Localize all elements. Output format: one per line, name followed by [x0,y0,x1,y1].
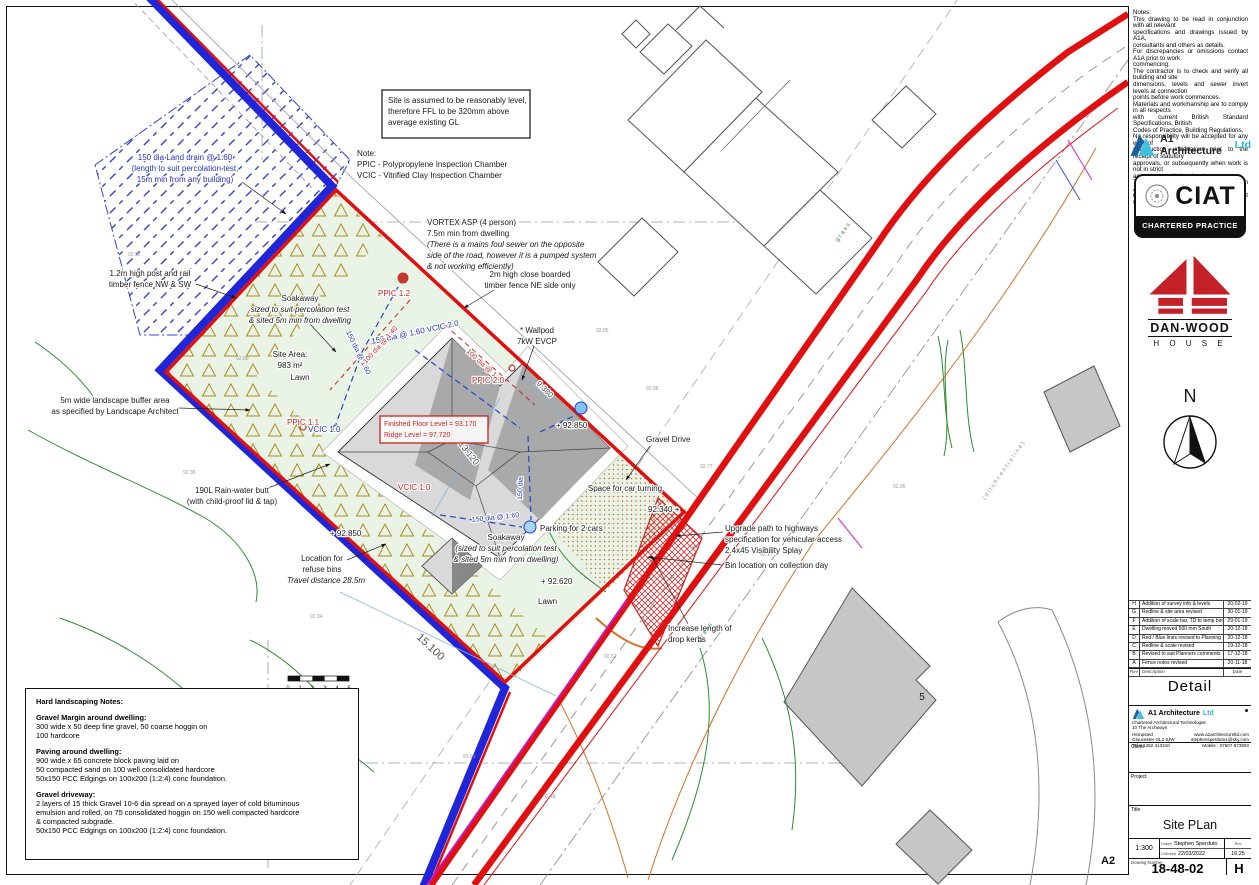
svg-text:92.86: 92.86 [236,356,249,362]
gravel-drive-label: Gravel Drive [646,435,691,444]
drawing-date: 22/03/2022 [1178,851,1205,857]
bullet-icon [1245,709,1248,712]
vortex-note: VORTEX ASP (4 person) [427,218,516,227]
chamber-note: Note: [357,149,376,158]
svg-text:91.95: 91.95 [463,754,476,760]
svg-text:92.34: 92.34 [310,614,323,620]
svg-text:therefore FFL to be 320mm abov: therefore FFL to be 320mm above [388,107,510,116]
detail-label: Detail [1129,678,1251,695]
spot-92340: 92.340 + [648,505,680,514]
wallpod-label: * Wallpod [520,326,554,335]
ppic-chamber-symbol [398,273,409,284]
a1-logo-text: A1 Architecture [1160,133,1231,157]
fence-ne-label: 2m high close boarded [490,270,571,279]
svg-text:92.52: 92.52 [604,654,617,660]
svg-text:average existing GL: average existing GL [388,118,460,127]
paper-size-label: A2 [1101,855,1115,867]
soakaway-symbol [524,521,536,533]
north-arrow: N [1129,374,1251,480]
svg-text:& sited 5m min from dwelling: & sited 5m min from dwelling [249,316,352,325]
svg-text:92.05: 92.05 [893,484,906,490]
client-field: Client [1129,742,1251,772]
svg-text:15m min from any building): 15m min from any building) [137,175,234,184]
buffer-label: 5m wide landscape buffer area [60,396,170,405]
detail-section: Detail [1129,668,1251,706]
drawing-number-label: Drawing Number [1131,860,1162,865]
firm-info: A1 ArchitectureLtd Chartered Architectur… [1129,705,1251,742]
svg-text:7.5m min from dwelling: 7.5m min from dwelling [427,229,509,238]
space-car-label: Space for car turning [588,484,662,493]
svg-text:92.88: 92.88 [646,386,659,392]
title-label: Title [1131,807,1140,813]
danwood-house-text: H O U S E [1129,339,1251,348]
svg-text:timber fence NW & SW: timber fence NW & SW [109,280,192,289]
hard-notes-heading: Hard landscaping Notes: [36,697,348,706]
svg-text:Ridge Level = 97.720: Ridge Level = 97.720 [384,432,450,439]
current-revision: H [1226,859,1251,875]
refuse-label: Location for [301,554,343,563]
svg-text:92.48: 92.48 [543,794,556,800]
project-field: Project [1129,772,1251,805]
danwood-text: DAN-WOOD [1148,319,1232,337]
svg-text:refuse bins: refuse bins [302,565,341,574]
dim-15100: 15.100 [414,631,447,663]
a1-logo-icon [1129,132,1156,159]
spot-92620: + 92.620 [541,577,573,586]
north-label: N [1184,386,1197,406]
spot-92850a: + 92.850 [556,421,588,430]
drawing-title: Site PLan [1131,818,1249,832]
neighbour-buildings-outline [598,6,936,296]
svg-text:PPIC - Polypropylene Inspectio: PPIC - Polypropylene Inspection Chamber [357,160,508,169]
revision-table: HAddition of survey info & levels20-02-1… [1129,600,1251,677]
title-field: Title Site PLan [1129,805,1251,838]
drawn-by: Stephen Sperduto [1174,841,1217,847]
ciat-emblem-icon [1144,183,1170,209]
gravel-margin-heading: Gravel Margin around dwelling: [36,713,348,722]
svg-text:timber fence NE side only: timber fence NE side only [484,281,575,290]
paving-body: 900 wide x 65 concrete block paving laid… [36,756,348,783]
scale-value: 1:300 [1129,839,1160,858]
bin-location-label: Bin location on collection day [725,561,828,570]
svg-text:92.92: 92.92 [128,252,141,258]
soakaway-nw-label: Soakaway [282,294,319,303]
svg-text:92.36: 92.36 [183,470,196,476]
culdesac-road-edges [998,608,1095,885]
danwood-house-icon [1146,252,1234,314]
svg-text:983 m²: 983 m² [278,361,303,370]
parking-label: Parking for 2 cars [540,524,603,533]
client-label: Client [1131,744,1144,750]
title-block: Notes: This drawing to be read in conjun… [1128,6,1251,875]
svg-text:(There is a mains foul sewer o: (There is a mains foul sewer on the oppo… [427,240,585,249]
upgrade-label: Upgrade path to highways [725,524,818,533]
hard-landscaping-notes: Hard landscaping Notes: Gravel Margin ar… [25,688,359,860]
svg-text:92.17: 92.17 [760,552,773,558]
svg-text:VCIC - Vitrified Clay Inspecti: VCIC - Vitrified Clay Inspection Chamber [357,171,502,180]
svg-text:(length to suit percolation te: (length to suit percolation test, [132,164,239,173]
house-number-5: 5 [919,692,925,703]
driveway-body: 2 layers of 15 thick Gravel 10-6 dia spr… [36,799,348,835]
site-level-note: Site is assumed to be reasonably level, [388,96,527,105]
svg-text:7kW EVCP: 7kW EVCP [517,337,557,346]
svg-text:as specified by Landscape Arch: as specified by Landscape Architect [51,407,179,416]
drain-150-label: 150 dia [517,477,525,500]
svg-text:sized to suit percolation test: sized to suit percolation test [251,305,350,314]
vcic10-blue-label: VCIC 1.0 [308,425,341,434]
ciat-text: CIAT [1175,182,1235,211]
svg-text:(sized to suit percolation tes: (sized to suit percolation test [455,544,557,553]
svg-text:92.85: 92.85 [596,328,609,334]
a1-architecture-logo: A1 ArchitectureLtd [1129,120,1251,170]
neighbour-buildings-grey [784,366,1120,884]
travel-distance-label: Travel distance 28.5m [287,576,365,585]
vortex-asp-symbol [575,402,587,414]
lawn-label-1: Lawn [290,373,309,382]
gravel-margin-body: 300 wide x 50 deep fine gravel, 50 coars… [36,722,348,740]
chartered-practice-text: CHARTERED PRACTICE [1136,216,1244,236]
site-area-label: Site Area: [273,350,308,359]
svg-text:side of the road, however it i: side of the road, however it is a pumped… [427,251,597,260]
paving-heading: Paving around dwelling: [36,747,348,756]
rainbutt-label: 190L Rain-water butt [195,486,270,495]
a1-logo-small-icon [1132,708,1145,720]
drawing-number-row: Drawing Number 18-48-02 H [1129,858,1251,875]
vcic10-red-label: VCIC 1.0 [398,483,431,492]
soakaway-s-label: Soakaway [488,533,525,542]
scale-row: 1:300 DrawnStephen Sperduto Checked22/03… [1129,838,1251,858]
driveway-heading: Gravel driveway: [36,790,348,799]
svg-text:specification for vehicular ac: specification for vehicular access [725,535,842,544]
firm-address: 10 The Archways [1132,725,1249,730]
ffl-label: Finished Floor Level = 93.170 [384,421,477,428]
svg-text:& sited 5m min from dwelling): & sited 5m min from dwelling) [454,555,559,564]
drop-kerbs-label: Increase length of [668,624,732,633]
land-drain-label: 150 dia Land drain @ 1:60 [138,153,233,162]
svg-text:92.77: 92.77 [700,464,713,470]
ditch-annotation: ( d i t c h c e n t r e l i n e ) [982,441,1027,501]
svg-text:(with child-proof lid & tap): (with child-proof lid & tap) [187,497,278,506]
lawn-label-2: Lawn [538,597,557,606]
danwood-logo: DAN-WOOD H O U S E [1129,252,1251,348]
project-label: Project [1131,774,1147,780]
ppic20-label: PPIC 2.0 [472,376,505,385]
spot-92850b: + 92.850 [330,529,362,538]
ciat-badge: CIAT CHARTERED PRACTICE [1129,174,1251,238]
fence-nw-label: 1.2m high post and rail [110,269,191,278]
ppic12-label: PPIC 1.2 [378,289,411,298]
plot-time: 16:25 [1231,851,1245,857]
